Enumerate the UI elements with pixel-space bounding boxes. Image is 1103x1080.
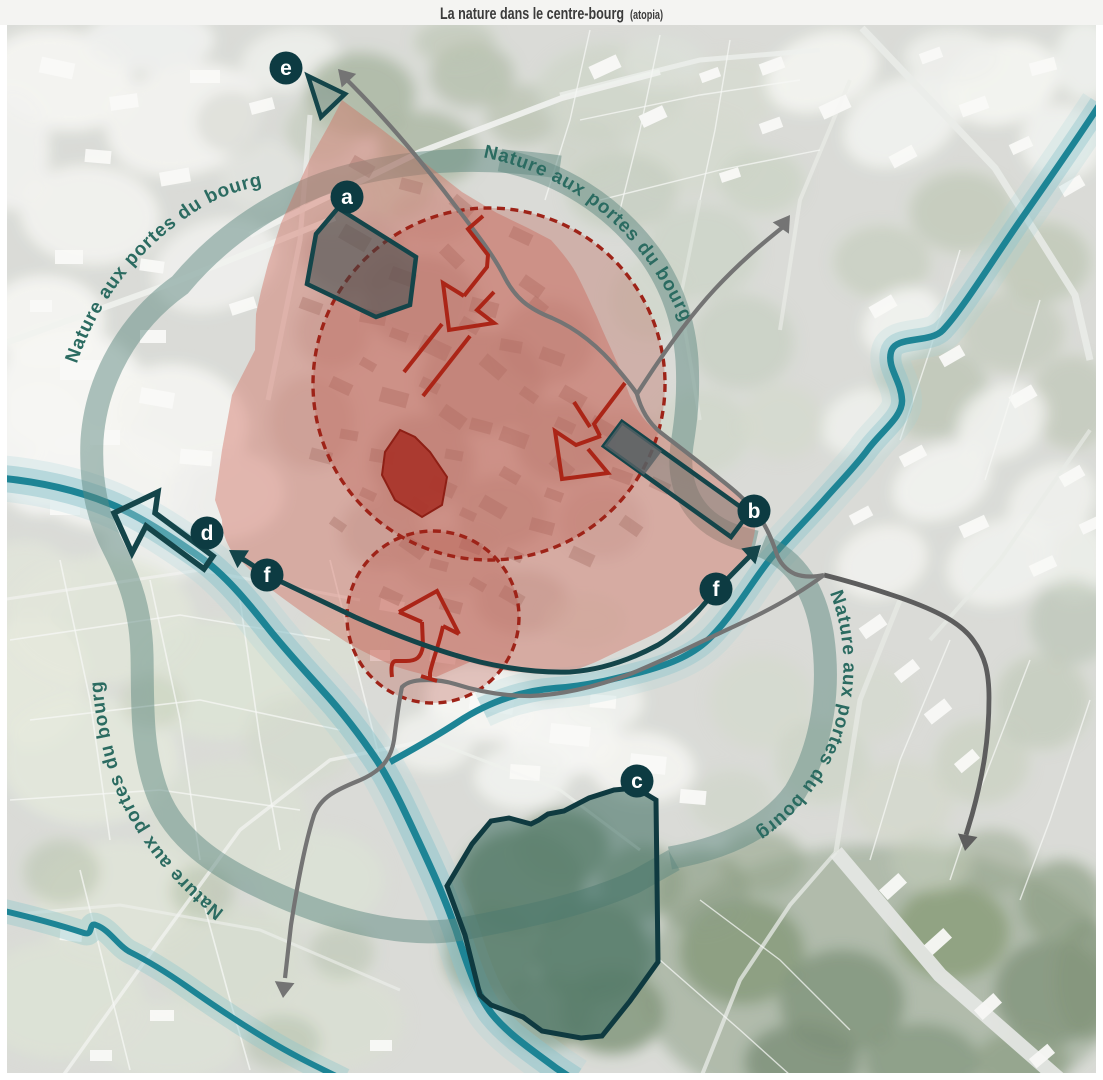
- svg-text:e: e: [280, 57, 292, 80]
- svg-text:b: b: [748, 500, 761, 523]
- svg-text:a: a: [341, 186, 353, 209]
- svg-text:d: d: [201, 522, 214, 545]
- svg-text:(atopia): (atopia): [630, 8, 663, 22]
- svg-text:f: f: [713, 578, 721, 601]
- svg-text:c: c: [631, 770, 643, 793]
- svg-text:f: f: [264, 564, 272, 587]
- svg-text:La nature dans le centre-bourg: La nature dans le centre-bourg: [440, 5, 624, 23]
